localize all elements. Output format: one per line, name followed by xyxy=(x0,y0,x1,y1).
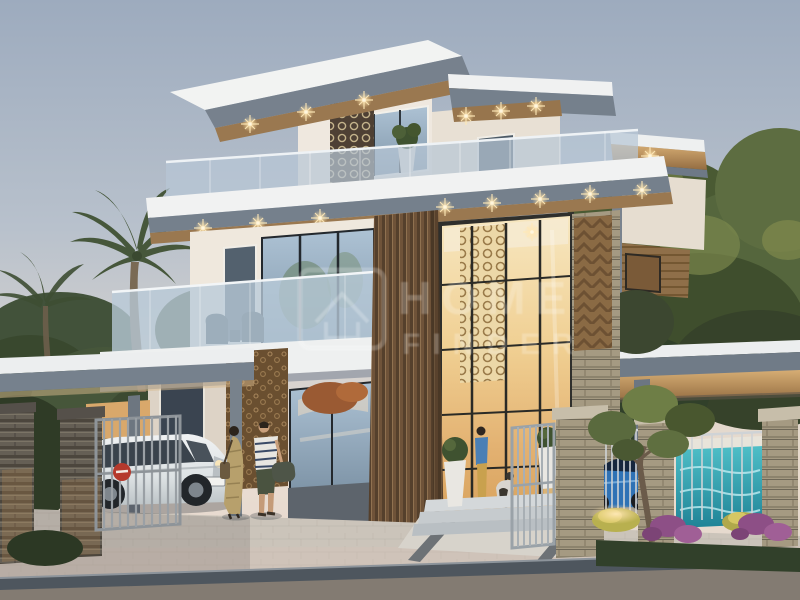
handbag xyxy=(220,462,230,479)
right-wing-window xyxy=(626,254,660,292)
wood-slat-column xyxy=(368,210,444,550)
duffel-bag xyxy=(271,461,296,483)
uplit-shrub xyxy=(590,504,642,532)
rendered-villa-image: HOME FINDER xyxy=(0,0,800,600)
watermark-subtitle: FINDER xyxy=(402,328,586,361)
dark-shrub xyxy=(7,530,83,566)
watermark-title: HOME xyxy=(398,272,576,324)
right-fence-zone xyxy=(552,385,800,572)
